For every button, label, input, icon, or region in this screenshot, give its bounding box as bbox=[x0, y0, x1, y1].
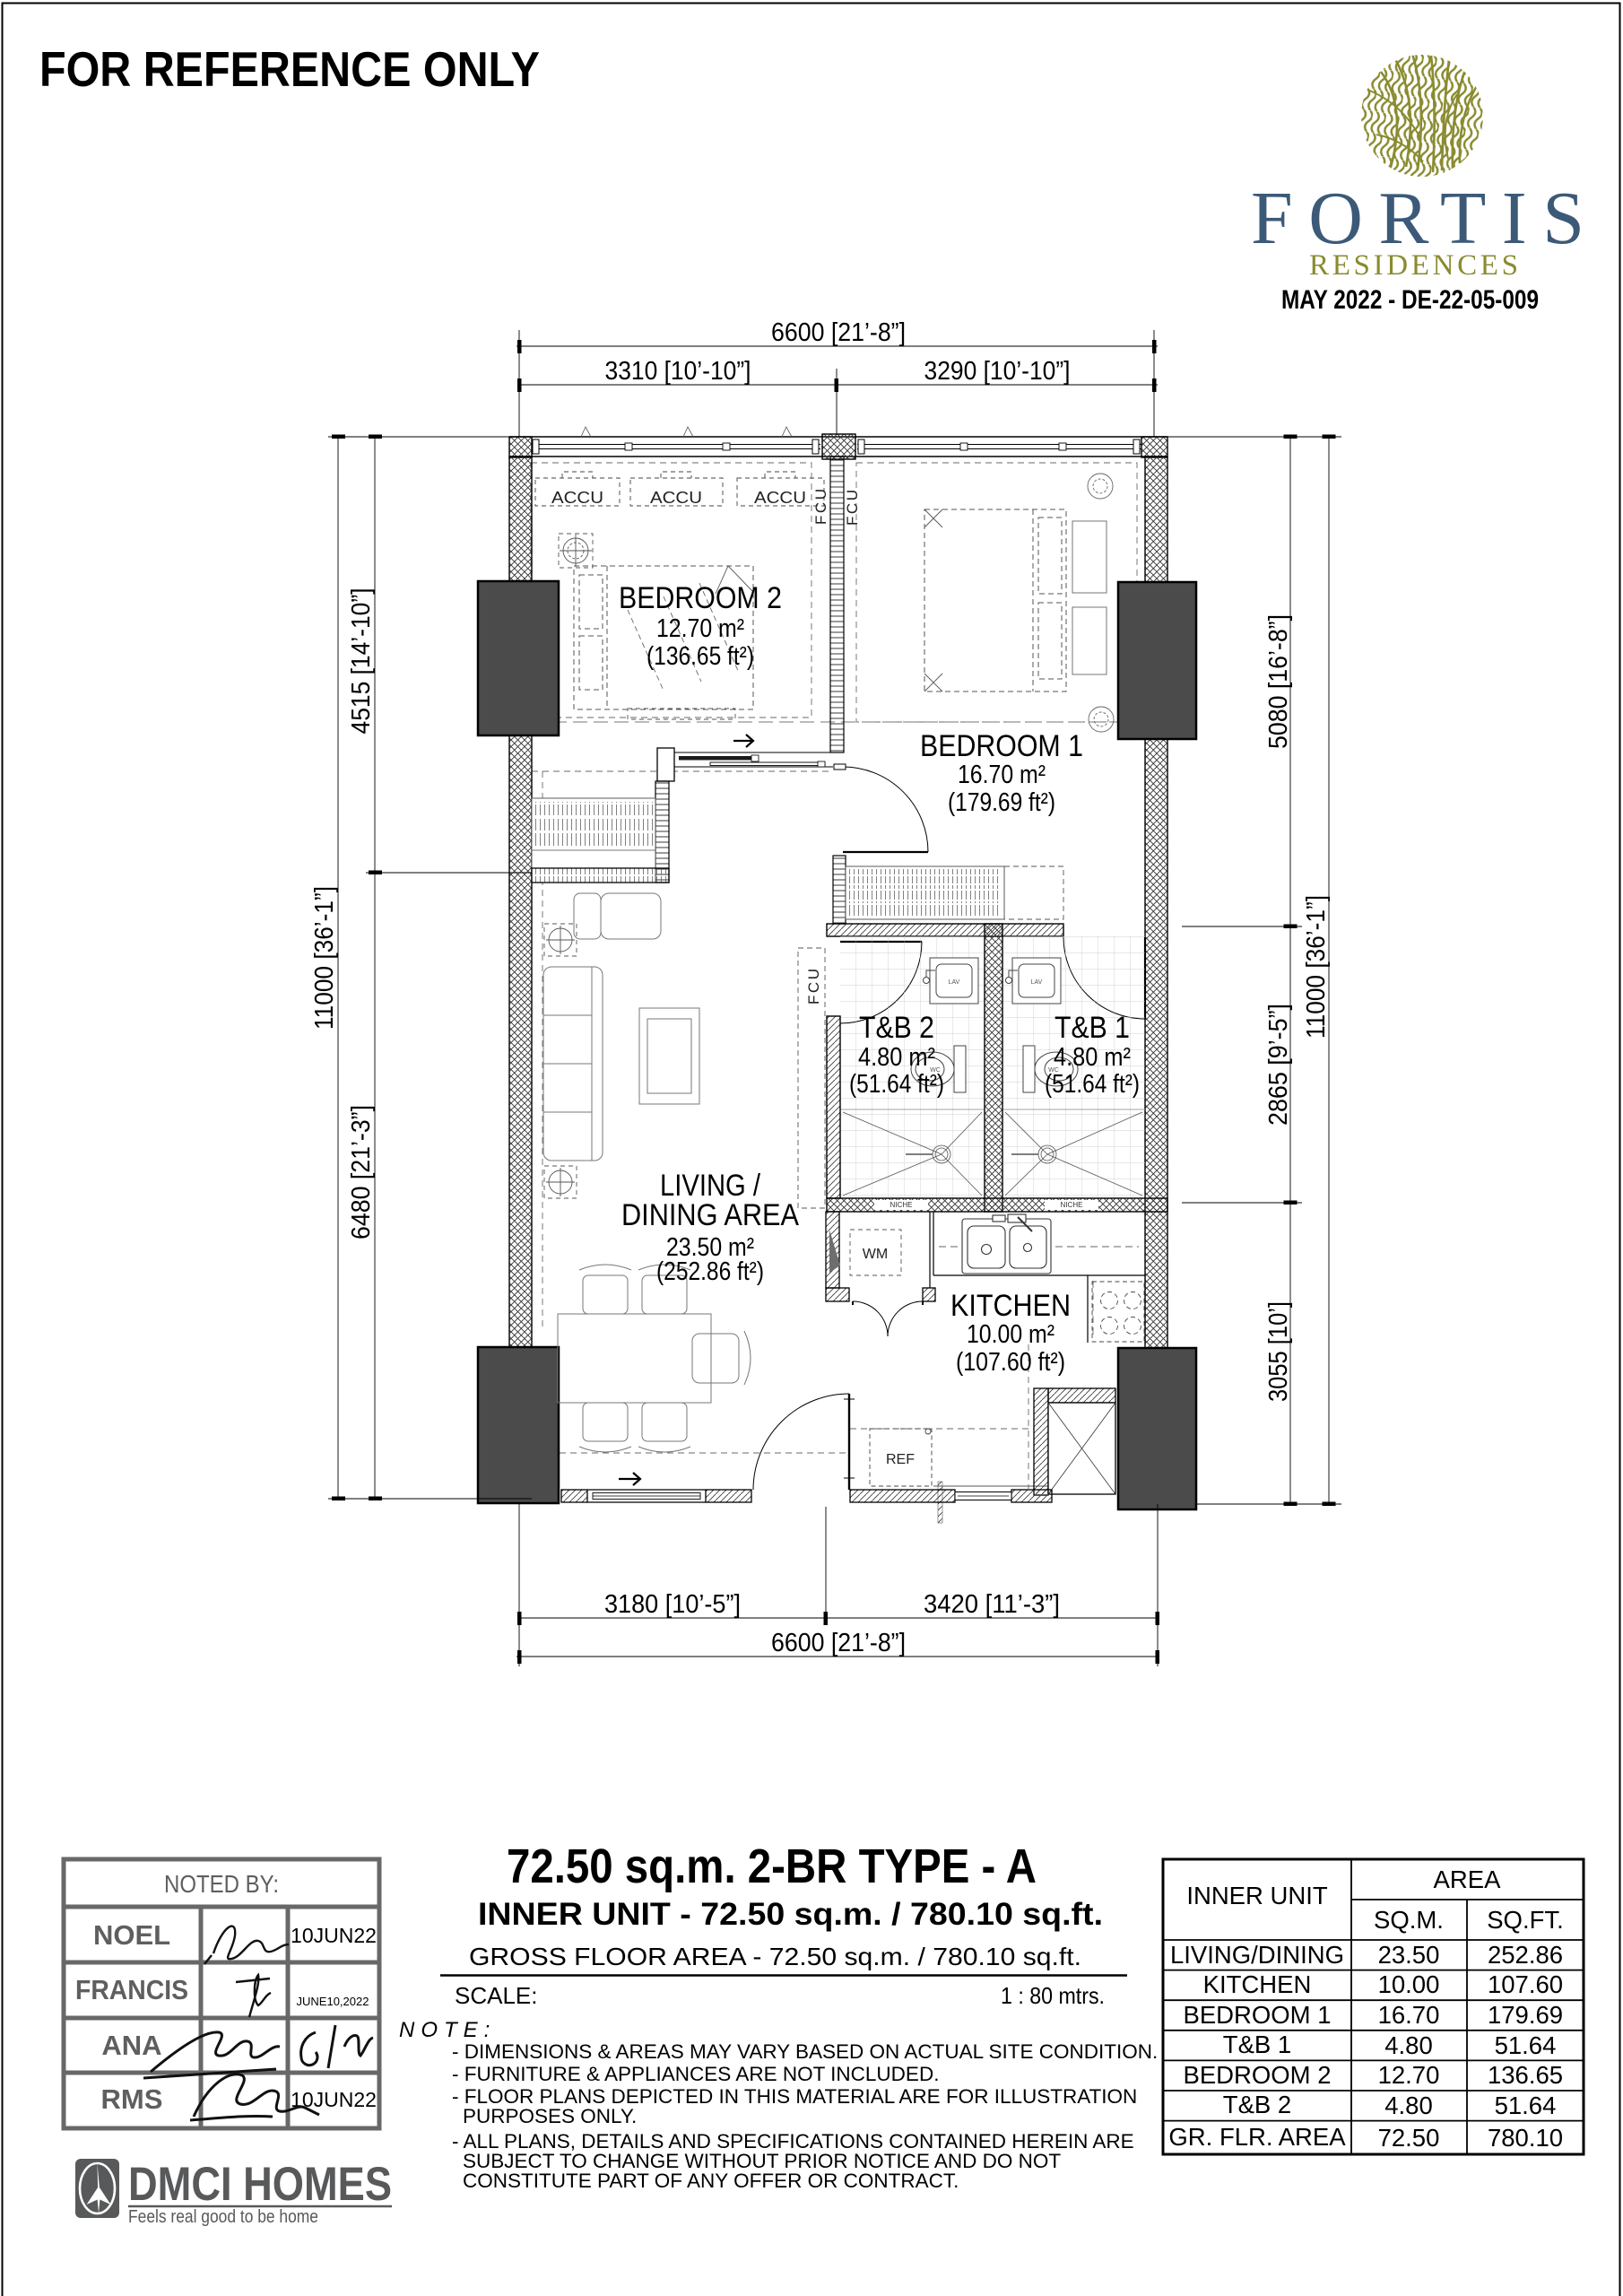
svg-text:FORTIS: FORTIS bbox=[1251, 177, 1584, 260]
svg-text:NOEL: NOEL bbox=[93, 1919, 170, 1951]
svg-text:136.65: 136.65 bbox=[1488, 2061, 1563, 2089]
svg-text:4.80 m²: 4.80 m² bbox=[858, 1043, 935, 1072]
svg-text:179.69: 179.69 bbox=[1488, 2001, 1563, 2029]
svg-text:NICHE: NICHE bbox=[1061, 1201, 1083, 1209]
svg-text:3180 [10’-5”]: 3180 [10’-5”] bbox=[604, 1590, 741, 1619]
svg-text:KITCHEN: KITCHEN bbox=[1203, 1970, 1312, 1998]
svg-text:3290 [10’-10”]: 3290 [10’-10”] bbox=[924, 357, 1071, 386]
svg-text:2865 [9’-5”]: 2865 [9’-5”] bbox=[1264, 1004, 1293, 1126]
svg-text:4.80: 4.80 bbox=[1384, 2031, 1433, 2059]
svg-text:780.10: 780.10 bbox=[1488, 2124, 1563, 2152]
svg-text:KITCHEN: KITCHEN bbox=[950, 1289, 1071, 1323]
svg-text:51.64: 51.64 bbox=[1495, 2092, 1557, 2119]
svg-text:4.80: 4.80 bbox=[1384, 2092, 1433, 2119]
svg-text:12.70 m²: 12.70 m² bbox=[656, 614, 744, 643]
svg-text:RMS: RMS bbox=[101, 2083, 163, 2115]
svg-text:4.80 m²: 4.80 m² bbox=[1054, 1043, 1131, 1072]
svg-text:BEDROOM 2: BEDROOM 2 bbox=[619, 581, 782, 615]
svg-text:T&B 2: T&B 2 bbox=[1223, 2091, 1291, 2118]
svg-text:(107.60 ft²): (107.60 ft²) bbox=[956, 1348, 1065, 1377]
svg-text:PURPOSES ONLY.: PURPOSES ONLY. bbox=[463, 2105, 637, 2127]
svg-text:T&B 2: T&B 2 bbox=[859, 1011, 934, 1045]
svg-text:(136.65 ft²): (136.65 ft²) bbox=[647, 642, 754, 671]
svg-text:4515 [14’-10”]: 4515 [14’-10”] bbox=[347, 588, 376, 735]
svg-text:11000 [36’-1”]: 11000 [36’-1”] bbox=[1302, 895, 1331, 1039]
svg-text:LIVING/DINING: LIVING/DINING bbox=[1170, 1941, 1344, 1969]
svg-text:72.50 sq.m. 2-BR TYPE - A: 72.50 sq.m. 2-BR TYPE - A bbox=[507, 1839, 1037, 1893]
svg-text:WM: WM bbox=[863, 1247, 888, 1262]
svg-text:BEDROOM 1: BEDROOM 1 bbox=[920, 729, 1083, 763]
svg-text:RESIDENCES: RESIDENCES bbox=[1309, 249, 1518, 282]
svg-text:ACCU: ACCU bbox=[754, 489, 806, 507]
svg-text:5080 [16’-8”]: 5080 [16’-8”] bbox=[1264, 614, 1293, 749]
svg-text:252.86: 252.86 bbox=[1488, 1941, 1563, 1969]
svg-text:6600 [21’-8”]: 6600 [21’-8”] bbox=[771, 318, 906, 347]
svg-text:FCU: FCU bbox=[844, 490, 861, 526]
svg-text:LAV: LAV bbox=[1031, 979, 1043, 986]
svg-text:23.50: 23.50 bbox=[1378, 1941, 1440, 1969]
svg-text:T&B 1: T&B 1 bbox=[1223, 2031, 1291, 2058]
svg-text:AREA: AREA bbox=[1434, 1865, 1502, 1893]
svg-text:MAY 2022 - DE-22-05-009: MAY 2022 - DE-22-05-009 bbox=[1281, 285, 1539, 315]
svg-text:DINING AREA: DINING AREA bbox=[621, 1198, 799, 1232]
svg-text:16.70 m²: 16.70 m² bbox=[958, 761, 1046, 789]
svg-text:CONSTITUTE PART OF ANY OFFER O: CONSTITUTE PART OF ANY OFFER OR CONTRACT… bbox=[463, 2170, 959, 2192]
svg-text:BEDROOM 1: BEDROOM 1 bbox=[1183, 2001, 1331, 2029]
svg-text:10.00: 10.00 bbox=[1378, 1970, 1440, 1998]
svg-text:11000 [36’-1”]: 11000 [36’-1”] bbox=[310, 886, 339, 1030]
svg-text:REF: REF bbox=[886, 1452, 915, 1467]
svg-text:NICHE: NICHE bbox=[890, 1201, 913, 1209]
svg-text:Feels real good to be home: Feels real good to be home bbox=[128, 2207, 318, 2227]
svg-text:GR. FLR. AREA: GR. FLR. AREA bbox=[1168, 2123, 1346, 2151]
svg-text:GROSS FLOOR AREA - 72.50 sq.m.: GROSS FLOOR AREA - 72.50 sq.m. / 780.10 … bbox=[469, 1943, 1081, 1970]
svg-text:16.70: 16.70 bbox=[1378, 2001, 1440, 2029]
svg-text:ANA: ANA bbox=[101, 2030, 161, 2061]
svg-text:10JUN22: 10JUN22 bbox=[291, 1924, 377, 1947]
svg-text:INNER UNIT: INNER UNIT bbox=[1186, 1882, 1328, 1909]
svg-text:NOTE:: NOTE: bbox=[399, 2018, 496, 2042]
svg-text:FCU: FCU bbox=[805, 969, 822, 1004]
svg-text:FRANCIS: FRANCIS bbox=[75, 1974, 188, 2005]
svg-text:107.60: 107.60 bbox=[1488, 1970, 1563, 1998]
svg-text:72.50: 72.50 bbox=[1378, 2124, 1440, 2152]
svg-text:3310 [10’-10”]: 3310 [10’-10”] bbox=[605, 357, 751, 386]
svg-text:FOR REFERENCE ONLY: FOR REFERENCE ONLY bbox=[39, 41, 540, 97]
svg-text:3420 [11’-3”]: 3420 [11’-3”] bbox=[924, 1590, 1060, 1619]
svg-text:6600 [21’-8”]: 6600 [21’-8”] bbox=[771, 1629, 906, 1657]
svg-text:(51.64 ft²): (51.64 ft²) bbox=[849, 1070, 944, 1099]
svg-text:ACCU: ACCU bbox=[650, 489, 702, 507]
svg-text:(179.69 ft²): (179.69 ft²) bbox=[948, 788, 1055, 817]
svg-text:SQ.M.: SQ.M. bbox=[1374, 1906, 1444, 1934]
svg-text:10.00 m²: 10.00 m² bbox=[967, 1320, 1055, 1349]
svg-text:(252.86 ft²): (252.86 ft²) bbox=[656, 1257, 764, 1286]
svg-text:T&B 1: T&B 1 bbox=[1055, 1011, 1130, 1045]
svg-text:LAV: LAV bbox=[949, 979, 960, 986]
svg-text:1 : 80 mtrs.: 1 : 80 mtrs. bbox=[1001, 1982, 1105, 2009]
svg-text:12.70: 12.70 bbox=[1378, 2061, 1440, 2089]
svg-text:JUNE10,2022: JUNE10,2022 bbox=[297, 1995, 369, 2008]
svg-text:- DIMENSIONS & AREAS MAY VARY: - DIMENSIONS & AREAS MAY VARY BASED ON A… bbox=[452, 2040, 1158, 2063]
svg-text:51.64: 51.64 bbox=[1495, 2031, 1557, 2059]
svg-text:- FURNITURE & APPLIANCES ARE N: - FURNITURE & APPLIANCES ARE NOT INCLUDE… bbox=[452, 2063, 939, 2085]
svg-text:FCU: FCU bbox=[812, 489, 829, 525]
svg-text:3055 [10’]: 3055 [10’] bbox=[1264, 1301, 1293, 1402]
svg-text:NOTED BY:: NOTED BY: bbox=[164, 1870, 279, 1898]
svg-text:SQ.FT.: SQ.FT. bbox=[1487, 1906, 1564, 1934]
svg-text:BEDROOM 2: BEDROOM 2 bbox=[1183, 2061, 1331, 2089]
svg-text:DMCI HOMES: DMCI HOMES bbox=[128, 2158, 392, 2211]
svg-text:6480 [21’-3”]: 6480 [21’-3”] bbox=[347, 1105, 376, 1239]
svg-text:ACCU: ACCU bbox=[551, 489, 603, 507]
svg-text:INNER UNIT - 72.50 sq.m. / 780: INNER UNIT - 72.50 sq.m. / 780.10 sq.ft. bbox=[478, 1897, 1103, 1932]
svg-text:SCALE:: SCALE: bbox=[455, 1982, 538, 2009]
svg-text:(51.64 ft²): (51.64 ft²) bbox=[1045, 1070, 1140, 1099]
